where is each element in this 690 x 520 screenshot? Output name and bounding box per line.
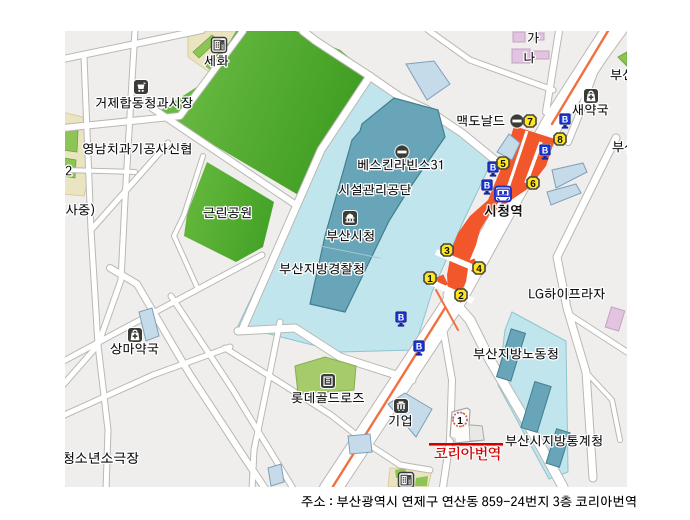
svg-text:1: 1 xyxy=(427,274,433,285)
svg-text:3: 3 xyxy=(444,246,450,257)
svg-text:B: B xyxy=(490,162,496,172)
svg-text:B: B xyxy=(416,341,422,351)
svg-text:5: 5 xyxy=(500,159,506,170)
svg-text:B: B xyxy=(484,180,490,190)
svg-text:2: 2 xyxy=(458,291,464,302)
svg-text:7: 7 xyxy=(527,117,533,128)
svg-text:B: B xyxy=(562,114,568,124)
svg-text:8: 8 xyxy=(557,135,563,146)
svg-text:B: B xyxy=(398,312,404,322)
svg-text:6: 6 xyxy=(530,179,536,190)
svg-text:B: B xyxy=(542,145,548,155)
svg-text:4: 4 xyxy=(476,264,482,275)
svg-text:1: 1 xyxy=(457,415,463,427)
